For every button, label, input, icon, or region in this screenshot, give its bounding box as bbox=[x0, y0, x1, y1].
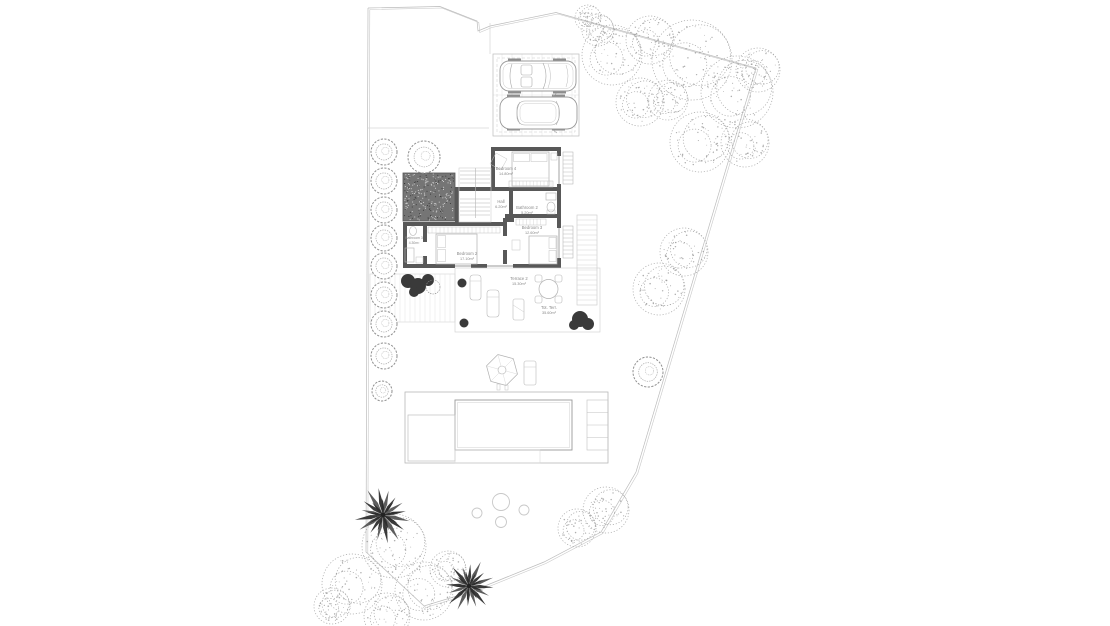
palm-tree-icon bbox=[355, 488, 410, 543]
room-label-bedroom-3: Bedroom 3 12.60m² bbox=[522, 225, 543, 235]
svg-text:15.30m²: 15.30m² bbox=[512, 282, 527, 286]
bush-icon bbox=[371, 225, 397, 251]
svg-text:Bedroom 2: Bedroom 2 bbox=[457, 251, 478, 256]
staircase bbox=[459, 168, 491, 222]
tree-icon bbox=[616, 78, 664, 126]
swimming-pool bbox=[405, 392, 608, 463]
tree-icon bbox=[322, 554, 382, 614]
room-label-bathroom-2: Bathroom 2 5.20m² bbox=[516, 205, 538, 215]
tree-icon bbox=[648, 80, 688, 120]
car-icon bbox=[500, 93, 577, 133]
svg-text:5.20m²: 5.20m² bbox=[521, 211, 534, 215]
gravel-patio bbox=[403, 173, 455, 221]
bush-icon bbox=[371, 168, 397, 194]
svg-text:Bedroom 3: Bedroom 3 bbox=[522, 225, 543, 230]
svg-text:Terrace 2: Terrace 2 bbox=[510, 276, 528, 281]
svg-text:12.60m²: 12.60m² bbox=[525, 231, 540, 235]
bush-icon bbox=[408, 141, 440, 173]
bush-icon bbox=[371, 343, 397, 369]
bush-icon bbox=[371, 139, 397, 165]
bush-icon bbox=[371, 282, 397, 308]
bush-icon bbox=[371, 197, 397, 223]
bush-icon bbox=[372, 381, 392, 401]
svg-text:Bathroom 3: Bathroom 3 bbox=[405, 236, 423, 240]
svg-text:6.20m²: 6.20m² bbox=[495, 205, 508, 209]
tree-icon bbox=[721, 119, 769, 167]
outdoor-dining-set bbox=[535, 275, 562, 303]
tree-icon bbox=[736, 48, 780, 92]
svg-text:Hall: Hall bbox=[497, 199, 504, 204]
parasol-icon bbox=[487, 355, 537, 391]
shutter-hatch bbox=[563, 152, 573, 258]
site-plan-svg: Bedroom 4 14.80m² Hall 6.20m² Bathroom 2… bbox=[0, 0, 1110, 626]
tree-icon bbox=[558, 509, 596, 547]
parking-area bbox=[493, 54, 579, 136]
bush-icon bbox=[371, 253, 397, 279]
tree-icon bbox=[652, 20, 732, 100]
tree-icon bbox=[701, 56, 773, 128]
tree-icon bbox=[395, 562, 453, 620]
tree-icon bbox=[633, 263, 685, 315]
tree-icon bbox=[575, 5, 601, 31]
room-label-terrace-2: Terrace 2 15.30m² bbox=[510, 276, 528, 286]
site-plan: Bedroom 4 14.80m² Hall 6.20m² Bathroom 2… bbox=[0, 0, 1110, 626]
tree-icon bbox=[583, 487, 629, 533]
bush-icon bbox=[633, 357, 663, 387]
room-label-bathroom-3: Bathroom 3 4.30m² bbox=[405, 236, 423, 245]
room-label-hall: Hall 6.20m² bbox=[495, 199, 508, 209]
plot-lines bbox=[368, 23, 490, 128]
svg-text:Bathroom 2: Bathroom 2 bbox=[516, 205, 538, 210]
tree-icon bbox=[660, 228, 708, 276]
tree-icon bbox=[364, 593, 410, 626]
car-icon bbox=[500, 59, 576, 94]
svg-text:4.30m²: 4.30m² bbox=[409, 241, 420, 245]
svg-text:Bedroom 4: Bedroom 4 bbox=[496, 166, 517, 171]
svg-text:17.10m²: 17.10m² bbox=[460, 257, 475, 261]
room-label-terrace-total: Tot. Terr. 35.60m² bbox=[541, 305, 557, 315]
svg-text:14.80m²: 14.80m² bbox=[499, 172, 514, 176]
bush-icon bbox=[371, 311, 397, 337]
stepping-stones bbox=[472, 494, 529, 528]
svg-text:35.60m²: 35.60m² bbox=[542, 311, 557, 315]
svg-text:Tot. Terr.: Tot. Terr. bbox=[541, 305, 557, 310]
